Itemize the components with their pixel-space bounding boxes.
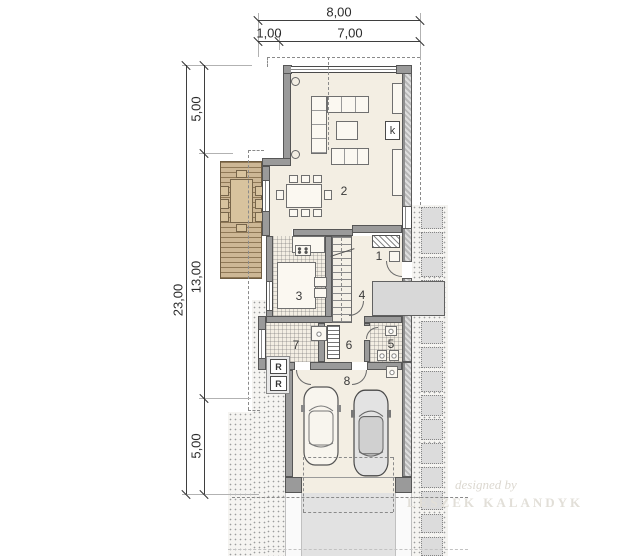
wall-segment (258, 358, 266, 370)
wall-east-upper (402, 73, 412, 207)
overhang-line (267, 57, 268, 67)
wall-living-kitchen (293, 229, 353, 236)
room-label-8: 8 (344, 374, 351, 388)
wall-segment (262, 166, 270, 181)
paving-square (421, 443, 443, 464)
paving-square (421, 467, 443, 488)
ground-texture-left-lower (266, 394, 285, 556)
window-deck (262, 181, 270, 211)
wall-east-garage (402, 362, 412, 477)
wall-kitchen-west (266, 236, 273, 282)
room-label-7: 7 (293, 338, 300, 352)
paving-square (421, 207, 443, 229)
deck-chair (220, 186, 229, 196)
deck-chair (236, 224, 247, 232)
overhang-line (248, 410, 260, 411)
extension-line (199, 398, 251, 399)
dining-chair (289, 175, 298, 183)
overhang-line (248, 150, 249, 410)
car-top-view (301, 385, 341, 467)
wall-segment (262, 211, 270, 236)
radiator-label: R (275, 362, 282, 372)
sofa-bottom (331, 148, 369, 165)
dim-top-seg2: 7,00 (337, 26, 362, 41)
wall-living-entry (352, 225, 402, 233)
dining-chair (324, 190, 332, 200)
plot-edge-line (228, 549, 468, 550)
ground-texture-bottom-left (228, 412, 252, 556)
window-kitchen (266, 282, 273, 310)
shelf-rack (327, 325, 340, 359)
garage-door-line (393, 457, 394, 512)
fireplace-box: k (385, 121, 400, 140)
kitchen-appliance (314, 288, 327, 298)
cooktop (295, 245, 311, 256)
driveway-edge-strip (285, 493, 302, 556)
entrance-porch (372, 281, 445, 316)
deck-chair (236, 170, 247, 178)
paving-square (421, 232, 443, 254)
cabinet (392, 149, 403, 196)
fireplace-label: k (390, 125, 396, 137)
deck-chair (220, 199, 229, 209)
wall-garage-north (310, 362, 352, 370)
dining-chair (289, 209, 298, 217)
dim-left-seg2: 13,00 (189, 261, 204, 294)
deck-chair (220, 212, 229, 222)
kitchen-appliance (314, 277, 327, 287)
column-circle (291, 77, 300, 86)
room-label-6: 6 (346, 338, 353, 352)
column-circle (291, 150, 300, 159)
dim-top-seg1: 1,00 (256, 26, 281, 41)
utility-meter-box (386, 366, 398, 378)
wall-step (262, 158, 291, 166)
paving-square (421, 257, 443, 277)
garage-door-line (303, 457, 304, 512)
radiator-box: R (270, 376, 287, 391)
paving-square (421, 537, 443, 556)
watermark-designer-name: LESZEK KALANDYK (407, 495, 583, 511)
sofa-top (327, 96, 369, 113)
wc-cistern (385, 326, 397, 336)
entry-door-opening (402, 262, 412, 278)
room-label-4: 4 (359, 288, 366, 302)
wall-east-entry (402, 228, 412, 262)
room-label-1: 1 (376, 249, 383, 263)
dim-left-seg3: 5,00 (189, 433, 204, 458)
cabinet (392, 83, 403, 114)
dining-chair (313, 209, 322, 217)
upper-floor-edge-line (328, 57, 329, 150)
garage-door-line (303, 512, 393, 513)
overhang-line (267, 57, 420, 58)
window-north (291, 66, 397, 73)
wc-toilet (377, 350, 387, 361)
overhang-line (420, 57, 421, 205)
paving-square (421, 371, 443, 392)
room-label-3: 3 (296, 289, 303, 303)
sofa-left (311, 96, 327, 154)
room-label-2: 2 (341, 184, 348, 198)
wall-utility-west (258, 316, 266, 330)
paving-square (421, 419, 443, 440)
dining-table (286, 184, 322, 208)
dimension-line-top-segments (258, 41, 420, 42)
dim-left-total: 23,00 (171, 284, 186, 317)
dimension-line-left-total (186, 65, 187, 494)
dining-chair (313, 175, 322, 183)
dimension-line-top-total (258, 20, 420, 21)
paving-square (421, 321, 443, 344)
washing-machine (311, 326, 327, 341)
driveway (302, 493, 395, 556)
dimension-line-left-segments (204, 65, 205, 494)
room-label-5: 5 (388, 337, 395, 351)
paving-square (421, 395, 443, 416)
garage-pier (285, 477, 302, 493)
dining-chair (301, 209, 310, 217)
stair-walk-line (341, 238, 342, 321)
coffee-table (336, 121, 358, 140)
wall-corridor-north (364, 316, 402, 323)
garage-pier (395, 477, 412, 493)
dim-top-total: 8,00 (326, 5, 351, 20)
deck-table (230, 179, 253, 223)
extension-line (182, 494, 259, 495)
window-utility (258, 330, 266, 358)
dim-left-seg1: 5,00 (189, 96, 204, 121)
overhang-line (248, 150, 264, 151)
radiator-label: R (275, 379, 282, 389)
window-east (402, 207, 412, 228)
dining-chair (276, 190, 284, 200)
wall-wc-west (364, 323, 370, 326)
dining-chair (301, 175, 310, 183)
wall-wc-west (364, 340, 370, 362)
extension-line (182, 65, 252, 66)
paving-square (421, 347, 443, 368)
watermark-designed-by: designed by (455, 477, 517, 493)
wardrobe-hatched (372, 235, 400, 248)
wall-west-upper (283, 73, 291, 161)
floor-plan-canvas: k R R (0, 0, 638, 556)
radiator-box: R (270, 359, 287, 374)
paving-square (421, 514, 443, 533)
car-top-view (351, 388, 391, 478)
wc-basin (389, 350, 399, 361)
garage-door-line (303, 457, 393, 458)
